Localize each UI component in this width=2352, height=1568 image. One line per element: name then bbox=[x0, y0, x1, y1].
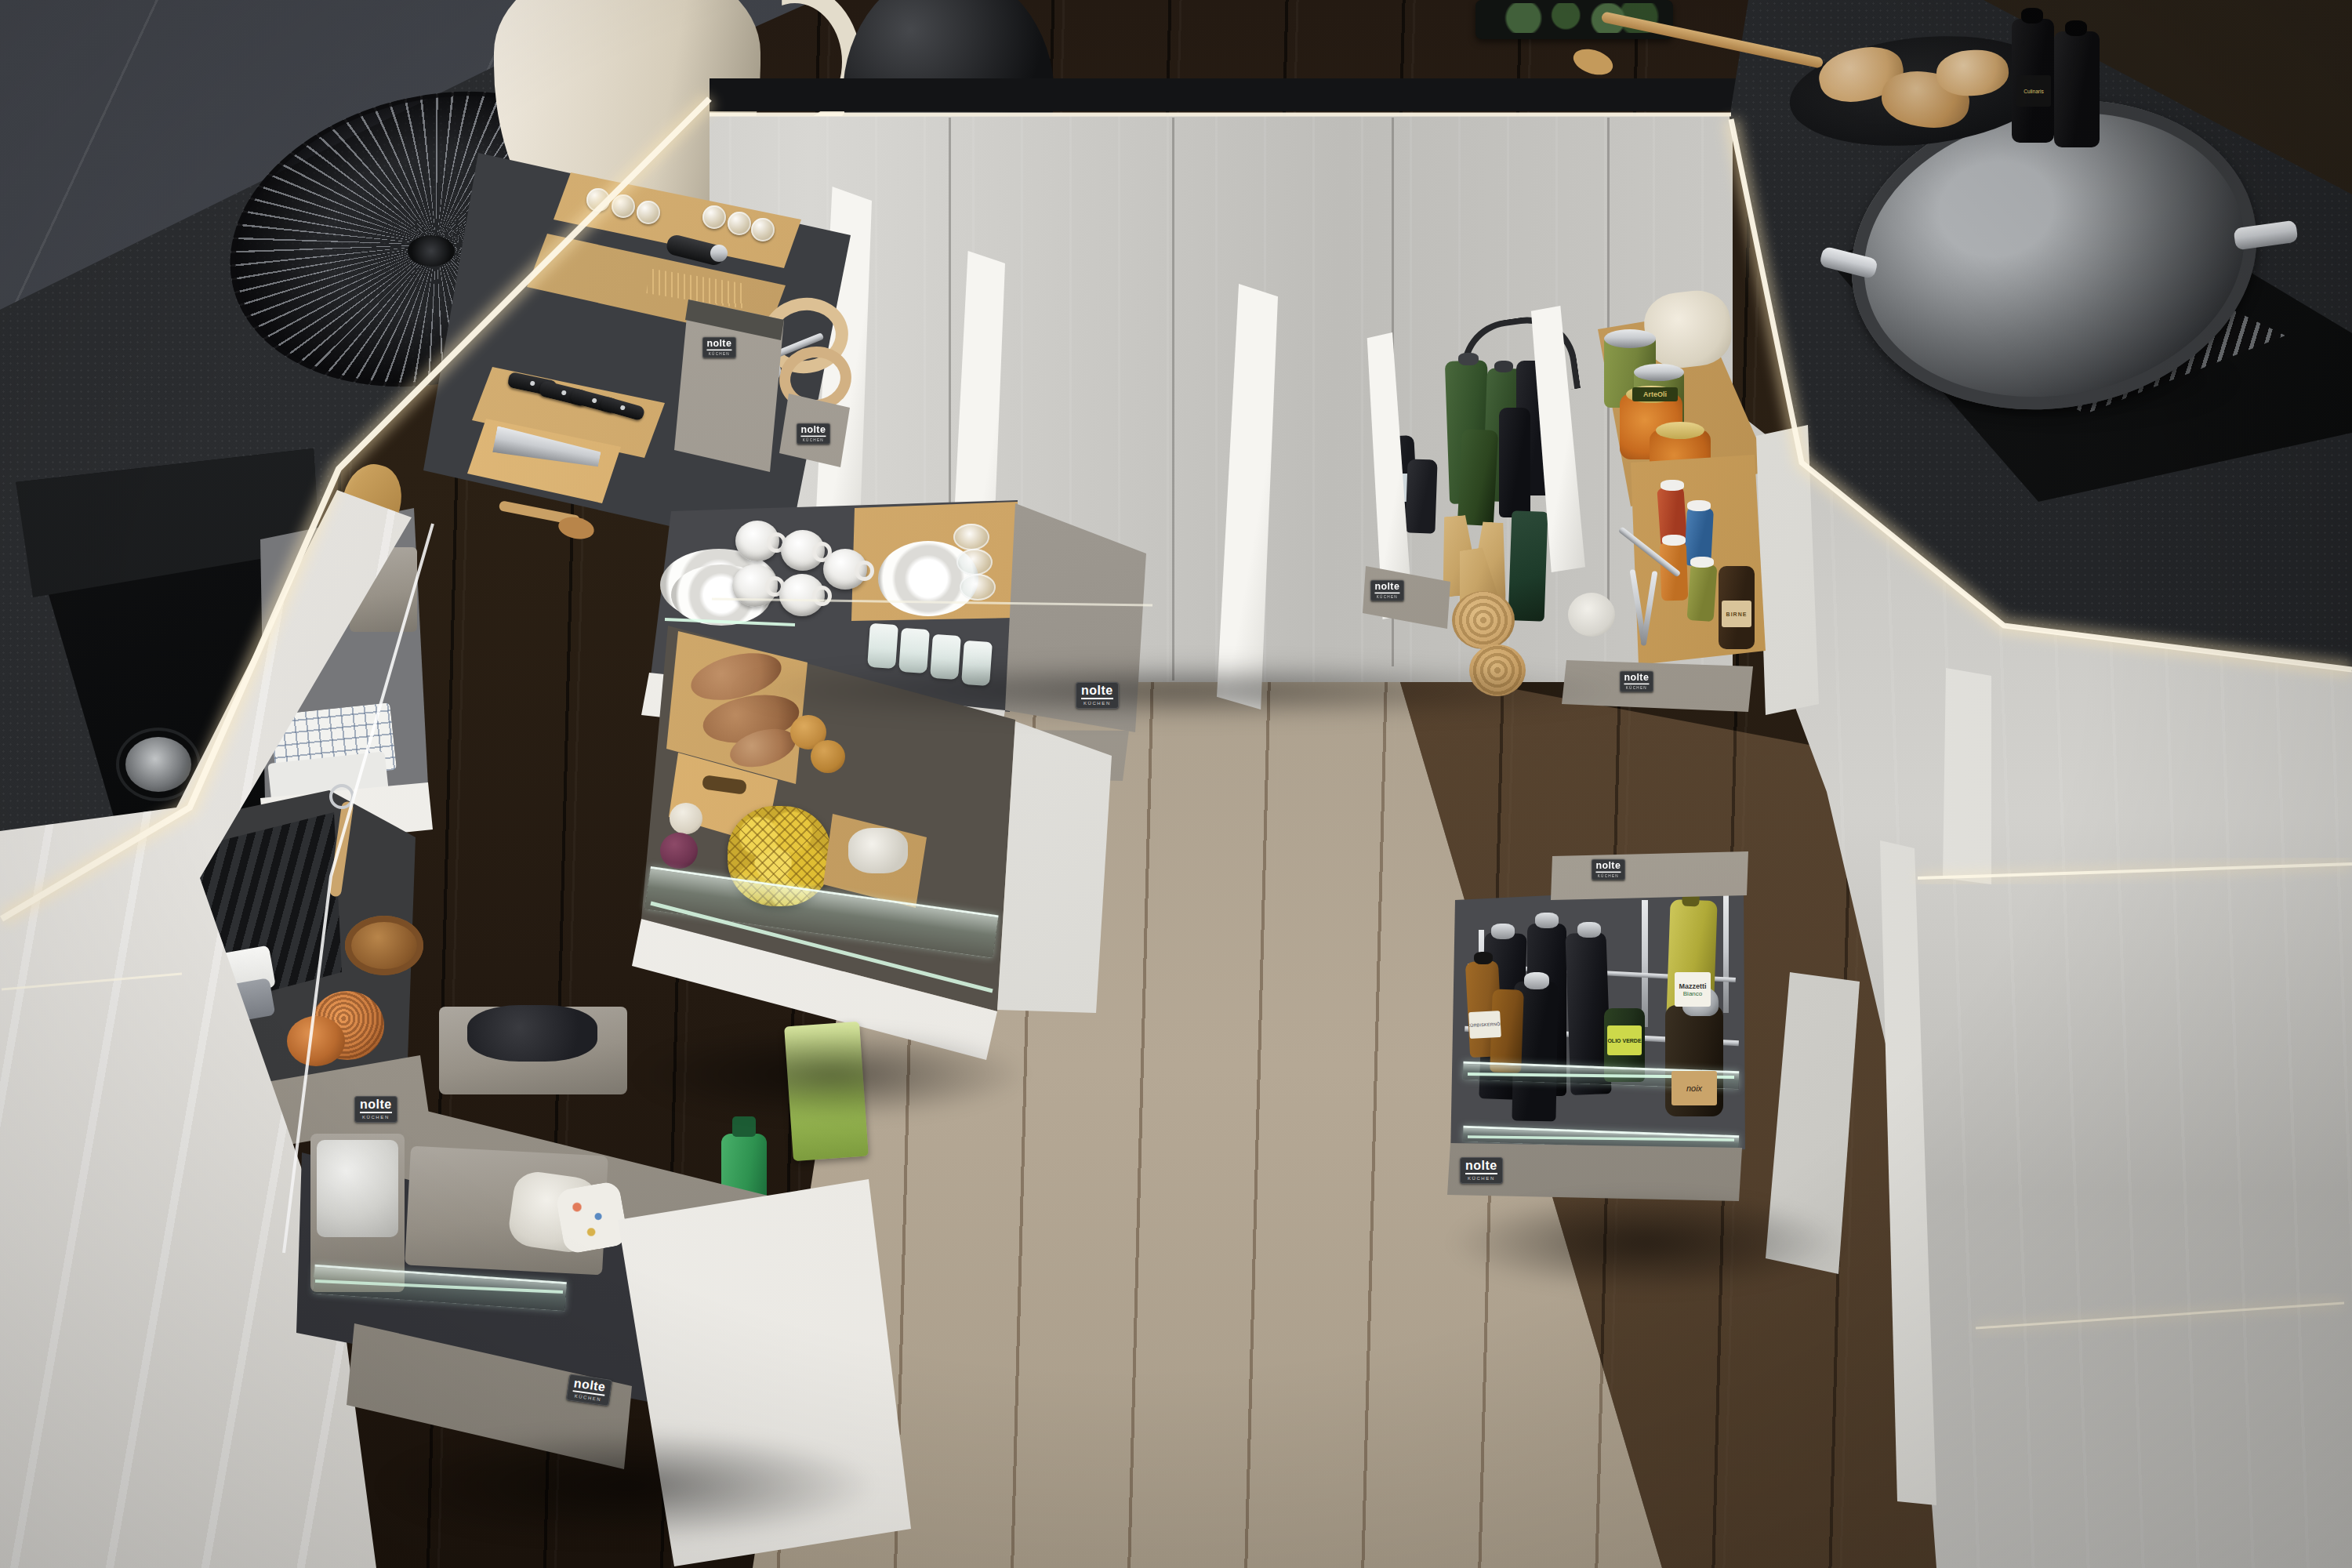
nolte-logo-badge: nolte KÜCHEN bbox=[797, 423, 830, 445]
brand-tagline: KÜCHEN bbox=[1468, 1176, 1495, 1181]
brand-name: nolte bbox=[1374, 582, 1399, 593]
brand-name: nolte bbox=[1081, 684, 1113, 699]
olive-can-label: ArteOli bbox=[1632, 387, 1678, 401]
brand-tagline: KÜCHEN bbox=[1598, 874, 1619, 878]
brand-name: nolte bbox=[1595, 861, 1621, 873]
soy-sauce-label: Culinaris bbox=[2016, 75, 2051, 107]
label-text: Mazzetti bbox=[1679, 982, 1706, 990]
nolte-logo-badge: nolte KÜCHEN bbox=[1370, 580, 1404, 601]
label-text: noix bbox=[1686, 1083, 1702, 1093]
pumpkin-oil-label: KÜRBISKERNÖL bbox=[1468, 1011, 1501, 1039]
label-text: Culinaris bbox=[2024, 89, 2043, 94]
vinegar-label-mazzetti: Mazzetti Bianco bbox=[1675, 972, 1711, 1007]
walnut-oil-label: noix bbox=[1671, 1071, 1717, 1105]
label-text: Bianco bbox=[1683, 990, 1702, 997]
nolte-logo-badge: nolte KÜCHEN bbox=[702, 337, 736, 358]
brand-tagline: KÜCHEN bbox=[1083, 701, 1111, 706]
nolte-logo-badge: nolte KÜCHEN bbox=[1460, 1157, 1503, 1184]
kitchen-photo: Mazzetti Bianco OLIO VERDE noix ArteOli … bbox=[0, 0, 2352, 1568]
label-text: KÜRBISKERNÖL bbox=[1468, 1022, 1501, 1028]
mustard-label: BIRNE bbox=[1722, 601, 1751, 627]
brand-name: nolte bbox=[360, 1098, 392, 1113]
brand-name: nolte bbox=[800, 425, 826, 437]
label-text: BIRNE bbox=[1726, 612, 1748, 617]
vignette bbox=[0, 0, 2352, 1568]
nolte-logo-badge: nolte KÜCHEN bbox=[1076, 682, 1119, 709]
brand-tagline: KÜCHEN bbox=[1626, 686, 1647, 690]
nolte-logo-badge: nolte KÜCHEN bbox=[354, 1096, 397, 1123]
nolte-logo-badge: nolte KÜCHEN bbox=[1620, 671, 1653, 692]
brand-tagline: KÜCHEN bbox=[362, 1115, 390, 1120]
olive-oil-label: OLIO VERDE bbox=[1607, 1025, 1642, 1055]
brand-name: nolte bbox=[706, 339, 731, 350]
brand-tagline: KÜCHEN bbox=[1377, 595, 1398, 599]
brand-name: nolte bbox=[1465, 1160, 1497, 1174]
label-text: ArteOli bbox=[1643, 390, 1667, 398]
label-text: OLIO VERDE bbox=[1607, 1038, 1641, 1044]
brand-tagline: KÜCHEN bbox=[803, 438, 824, 442]
brand-name: nolte bbox=[1624, 673, 1649, 684]
brand-tagline: KÜCHEN bbox=[709, 352, 730, 356]
nolte-logo-badge: nolte KÜCHEN bbox=[1592, 859, 1625, 880]
